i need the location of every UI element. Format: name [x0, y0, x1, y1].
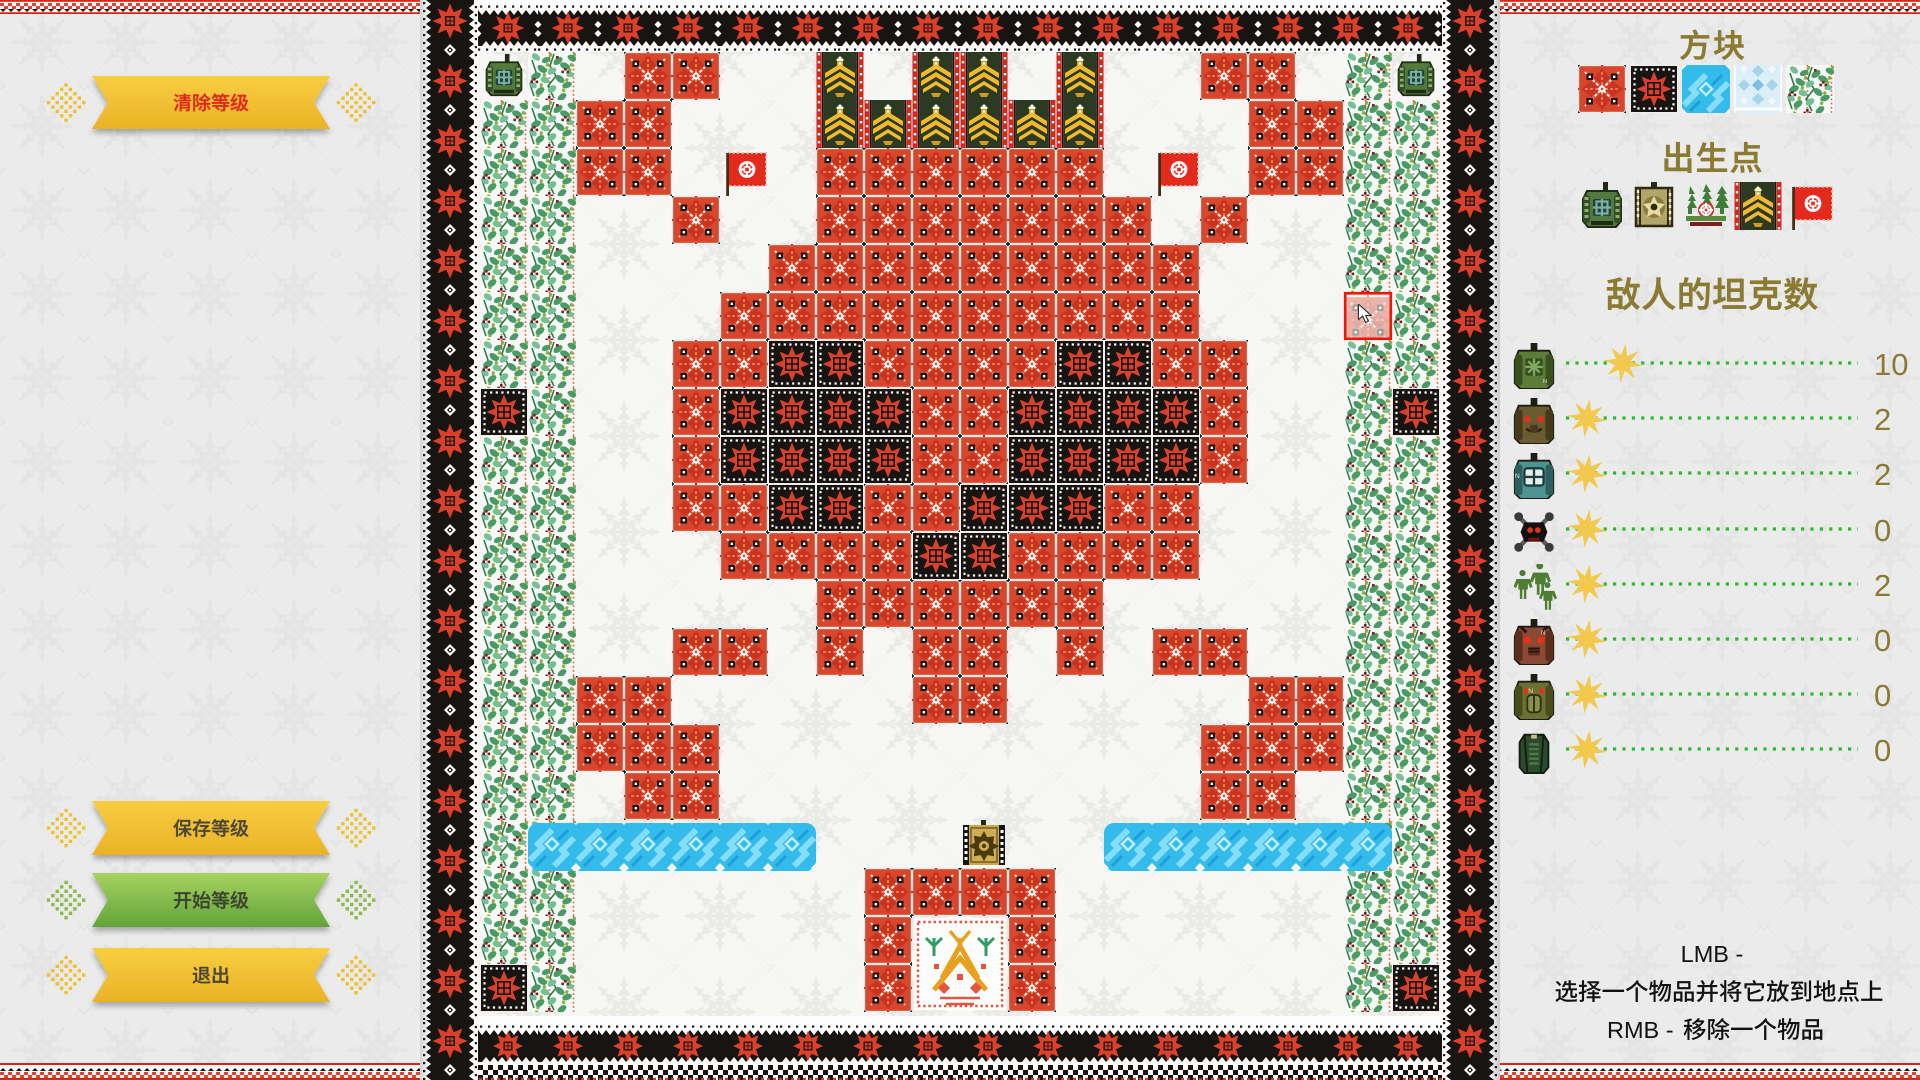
svg-text:0: 0 — [1874, 623, 1891, 658]
svg-text:0: 0 — [1874, 513, 1891, 548]
svg-text:LMB -: LMB - — [1681, 941, 1744, 967]
svg-text:RMB -: RMB - — [1607, 1017, 1674, 1043]
svg-text:0: 0 — [1874, 733, 1891, 768]
svg-text:2: 2 — [1874, 402, 1891, 437]
svg-text:0: 0 — [1874, 678, 1891, 713]
svg-text:2: 2 — [1874, 568, 1891, 603]
svg-text:2: 2 — [1874, 457, 1891, 492]
svg-text:10: 10 — [1874, 347, 1908, 382]
